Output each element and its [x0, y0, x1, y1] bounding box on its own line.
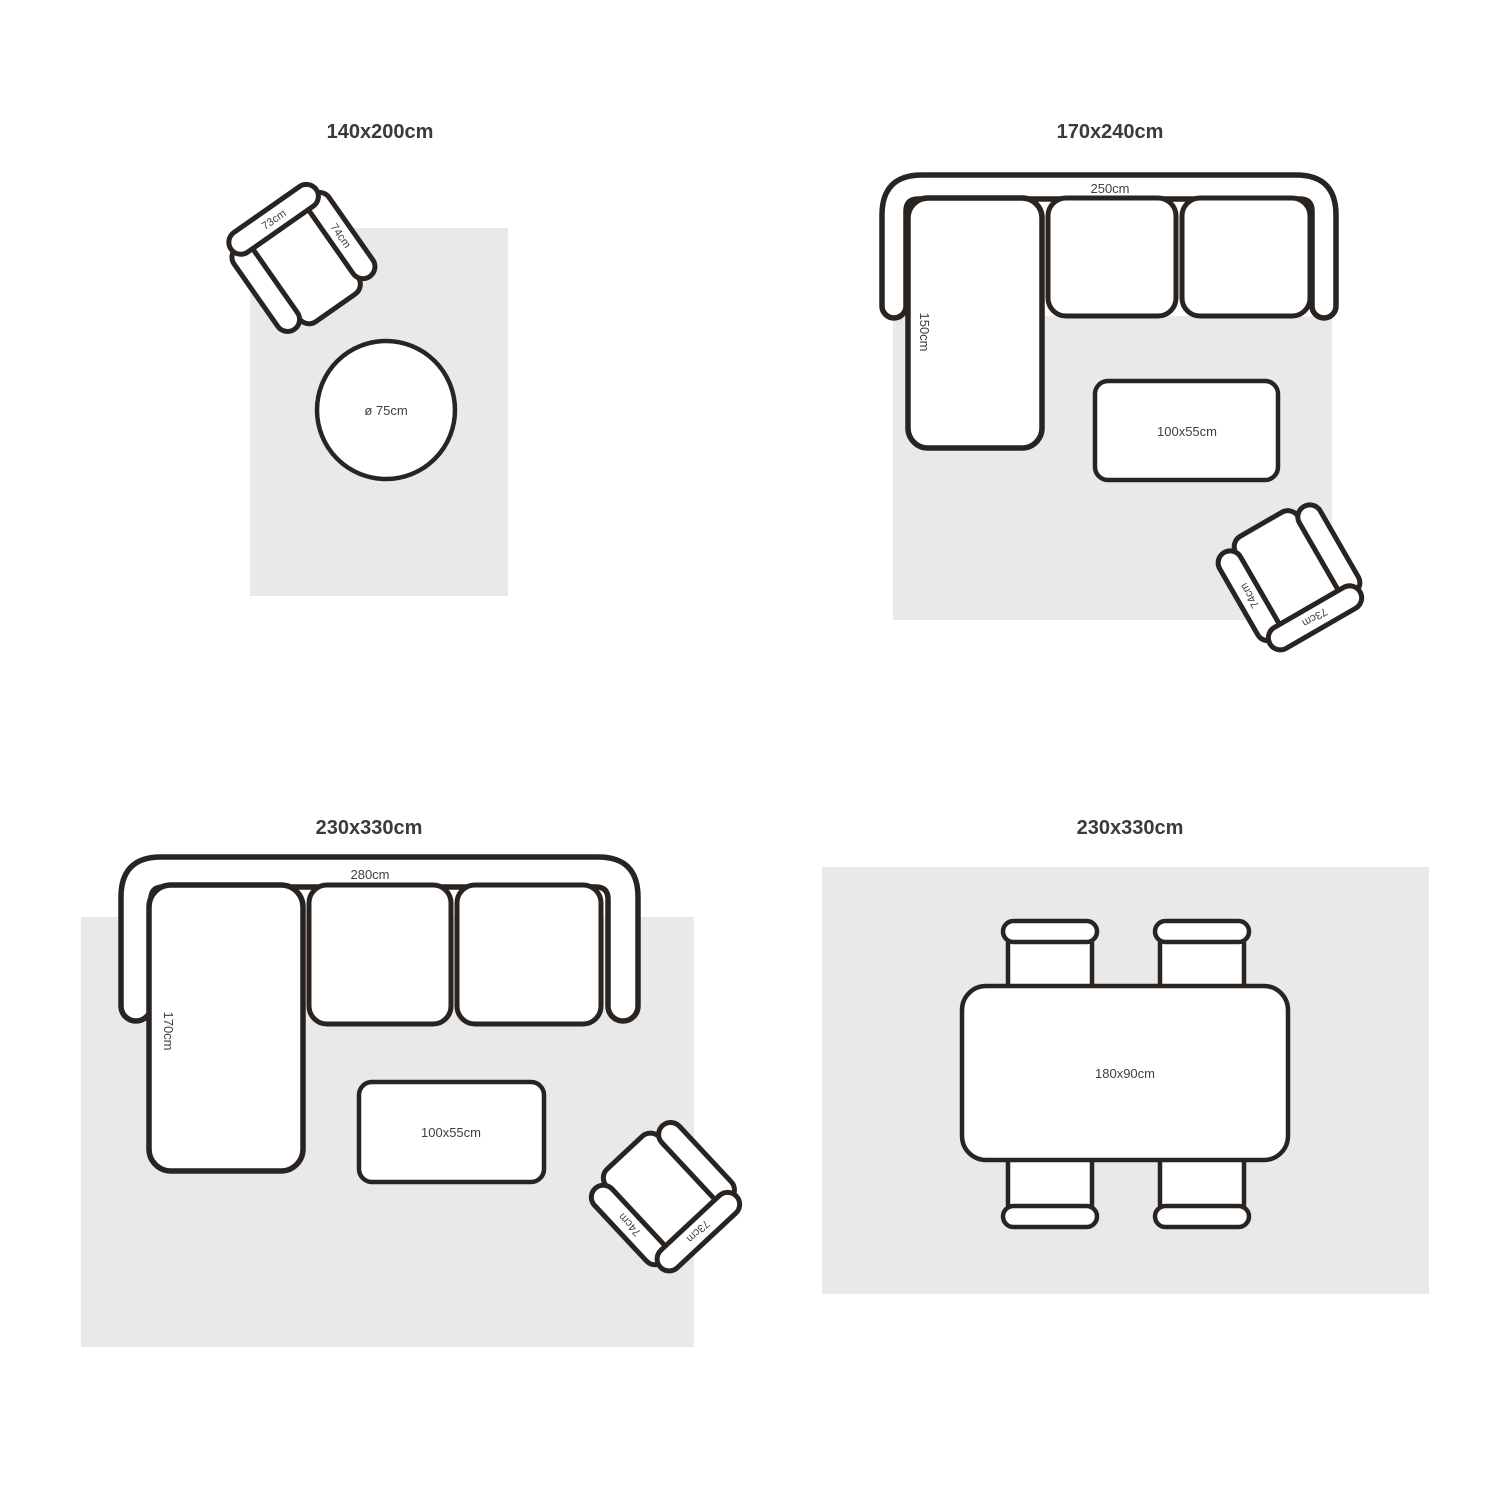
rug-size-guide: 140x200cm 73cm 74cm ø 75cm 170x240cm 250… [0, 0, 1500, 1500]
sofa-cushion [1182, 198, 1310, 316]
quadrant-title: 230x330cm [1077, 817, 1184, 839]
round-side-table: ø 75cm [317, 341, 455, 479]
sofa-cushion [457, 885, 601, 1024]
quadrant-170x240: 170x240cm 250cm 150cm 100x55cm 73cm 74cm [882, 121, 1371, 657]
dining-chair-outline [1155, 921, 1249, 990]
quadrant-title: 140x200cm [327, 121, 434, 143]
sofa-depth-dimension: 170cm [161, 1011, 176, 1050]
quadrant-140x200: 140x200cm 73cm 74cm ø 75cm [219, 121, 508, 596]
dining-chair [1155, 1158, 1249, 1227]
dining-chair-outline [1155, 1158, 1249, 1227]
dining-chair [1003, 921, 1097, 990]
rug-size-guide-diagram: 140x200cm 73cm 74cm ø 75cm 170x240cm 250… [0, 0, 1500, 1500]
coffee-table: 100x55cm [359, 1082, 544, 1182]
dining-table: 180x90cm [962, 986, 1288, 1160]
dining-table-dimension: 180x90cm [1095, 1066, 1155, 1081]
quadrant-230x330-dining: 230x330cm 180x90cm [822, 817, 1429, 1294]
sofa-cushion [309, 885, 451, 1024]
sofa-depth-dimension: 150cm [917, 312, 932, 351]
sofa-width-dimension: 280cm [350, 867, 389, 882]
sofa-cushion [1048, 198, 1176, 316]
dining-chair-outline [1003, 1158, 1097, 1227]
coffee-table-dimension: 100x55cm [1157, 424, 1217, 439]
quadrant-title: 170x240cm [1057, 121, 1164, 143]
dining-chair [1155, 921, 1249, 990]
quadrant-title: 230x330cm [316, 817, 423, 839]
dining-chair-outline [1003, 921, 1097, 990]
sofa-width-dimension: 250cm [1090, 181, 1129, 196]
coffee-table-dimension: 100x55cm [421, 1125, 481, 1140]
coffee-table: 100x55cm [1095, 381, 1278, 480]
dining-chair [1003, 1158, 1097, 1227]
quadrant-230x330-living: 230x330cm 280cm 170cm 100x55cm 73cm 74cm [81, 817, 749, 1347]
round-table-dimension: ø 75cm [364, 403, 407, 418]
